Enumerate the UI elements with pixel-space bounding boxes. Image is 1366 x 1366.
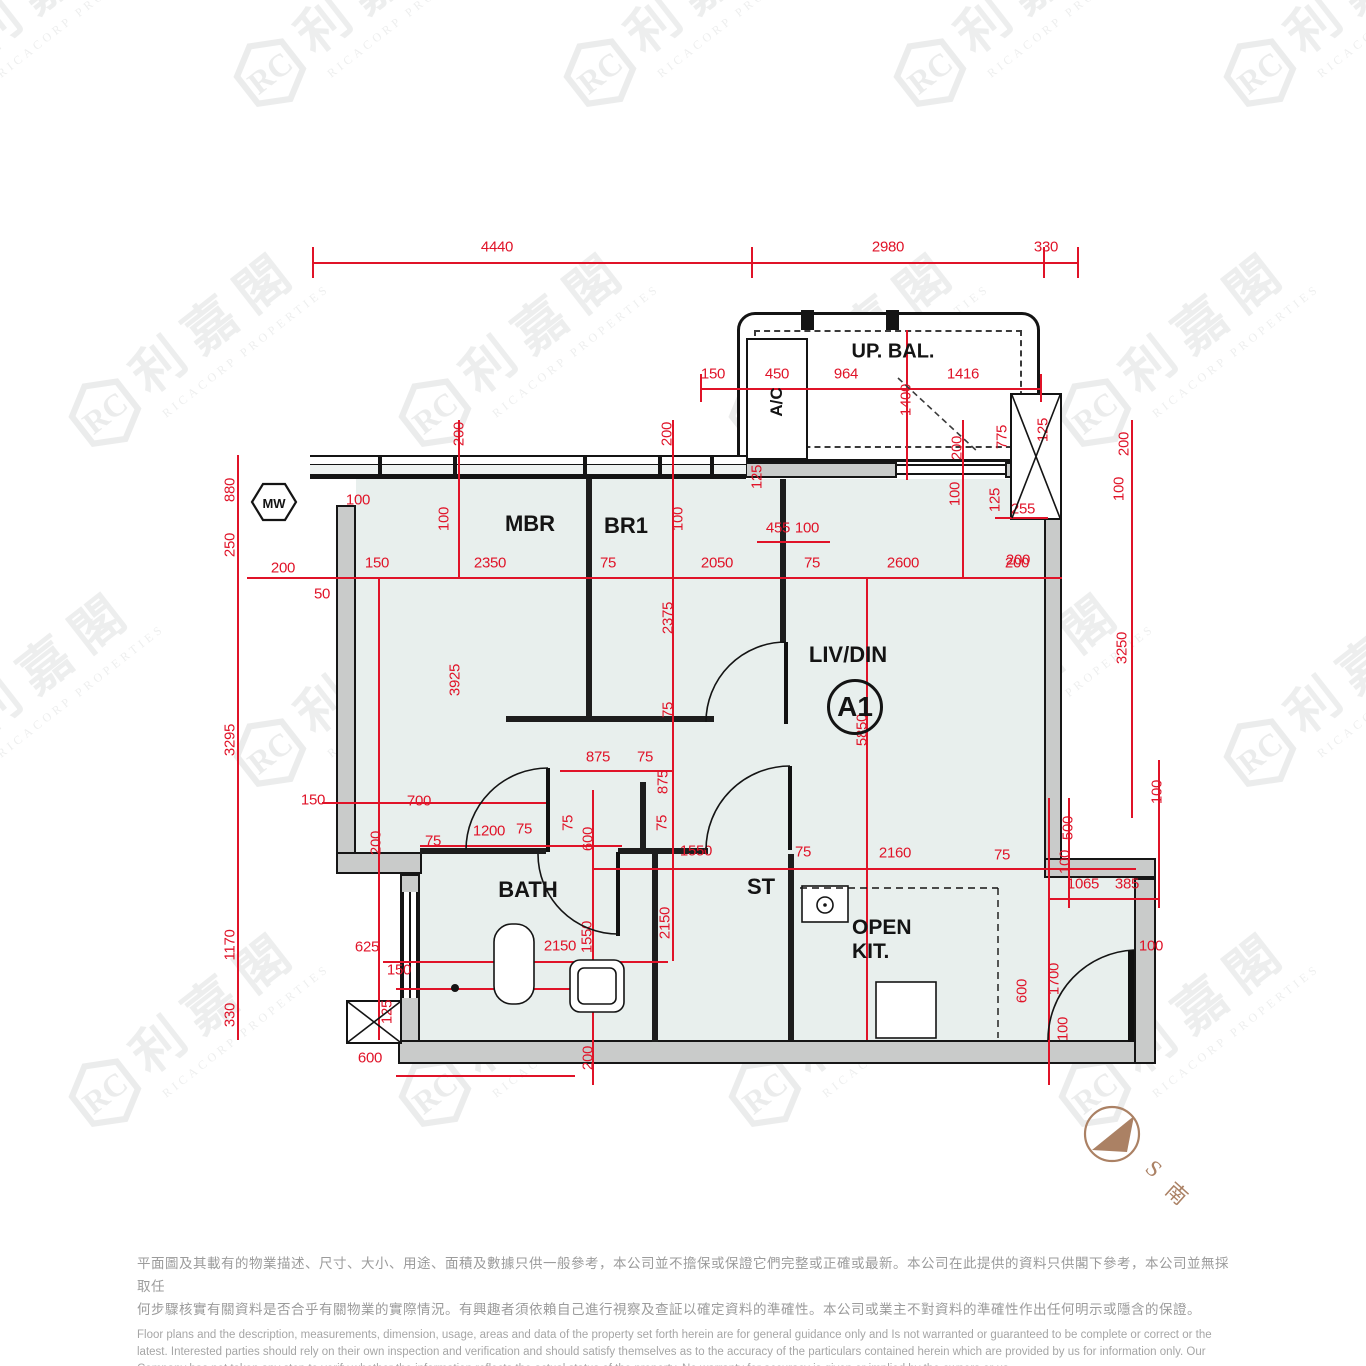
- svg-text:RC: RC: [406, 1064, 465, 1121]
- svg-text:RC: RC: [241, 44, 300, 101]
- window-band: [310, 455, 746, 479]
- wall-interior: [586, 479, 592, 722]
- dimension-label: 455: [766, 520, 790, 537]
- disclaimer-en-3: Company has not taken any step to verify…: [137, 1361, 1242, 1366]
- dimension-line: [383, 961, 668, 963]
- dimension-label: 75: [994, 847, 1010, 864]
- dimension-line: [322, 802, 546, 804]
- dimension-label: 75: [795, 844, 811, 861]
- dimension-label: 75: [804, 555, 820, 572]
- watermark-cn: 利嘉閣: [937, 0, 1148, 68]
- dimension-label: 2350: [474, 555, 506, 572]
- disclaimer-en: Floor plans and the description, measure…: [137, 1327, 1242, 1366]
- watermark-en: RICACORP PROPERTIES: [1314, 0, 1366, 81]
- dimension-line: [396, 988, 592, 990]
- dimension-label: 125: [749, 465, 766, 489]
- ricacorp-logo-icon: RC: [1208, 701, 1312, 805]
- watermark: RC利嘉閣RICACORP PROPERTIES: [0, 560, 168, 811]
- dimension-label: 200: [1005, 555, 1029, 572]
- room-label-livdin: LIV/DIN: [809, 642, 887, 668]
- watermark: RC利嘉閣RICACORP PROPERTIES: [542, 0, 828, 132]
- dimension-label: 330: [222, 1003, 239, 1027]
- watermark-en: RICACORP PROPERTIES: [0, 621, 168, 761]
- disclaimer: 平面圖及其載有的物業描述、尺寸、大小、用途、面積及數據只供一般參考，本公司並不擔…: [137, 1252, 1242, 1366]
- dimension-line: [1131, 420, 1133, 818]
- room-label-openkit: OPEN KIT.: [852, 916, 912, 964]
- door-leaf: [546, 768, 550, 852]
- dimension-label: 3250: [1114, 632, 1131, 664]
- dimension-label: 75: [637, 749, 653, 766]
- watermark-cn: 利嘉閣: [1267, 0, 1366, 68]
- dimension-line: [312, 262, 1078, 264]
- dimension-label: 964: [834, 366, 858, 383]
- dimension-label: 100: [1149, 780, 1166, 804]
- ricacorp-logo-icon: RC: [548, 21, 652, 125]
- wall-exterior: [1044, 478, 1062, 860]
- wall-exterior: [1134, 878, 1156, 1064]
- dimension-label: 150: [387, 962, 411, 979]
- wall-exterior: [398, 1040, 1136, 1064]
- watermark-cn: 利嘉閣: [607, 0, 818, 68]
- dimension-label: 625: [355, 939, 379, 956]
- dimension-label: 125: [1035, 418, 1052, 442]
- room-fill: [1044, 878, 1134, 1040]
- bath-window: [402, 892, 418, 998]
- watermark: RC利嘉閣RICACORP PROPERTIES: [1202, 560, 1366, 811]
- compass: S 南: [1085, 1107, 1192, 1210]
- dimension-label: 100: [795, 520, 819, 537]
- wall-interior: [652, 854, 658, 1042]
- unit-badge: A1: [827, 679, 883, 735]
- watermark: RC利嘉閣RICACORP PROPERTIES: [872, 0, 1158, 132]
- dimension-label: 75: [425, 833, 441, 850]
- window-mullion: [710, 456, 714, 478]
- dimension-label: 2050: [701, 555, 733, 572]
- svg-text:RC: RC: [76, 1064, 135, 1121]
- dimension-line: [672, 420, 674, 961]
- watermark-en: RICACORP PROPERTIES: [654, 0, 828, 81]
- watermark-en: RICACORP PROPERTIES: [1314, 621, 1366, 761]
- wall-interior: [640, 782, 646, 848]
- dimension-label: 150: [365, 555, 389, 572]
- dimension-label: 2150: [657, 907, 674, 939]
- dimension-label: 75: [560, 815, 577, 831]
- dimension-label: 1170: [222, 929, 239, 960]
- dimension-line: [1048, 898, 1158, 900]
- dimension-label: 775: [994, 425, 1011, 449]
- watermark-cn: 利嘉閣: [112, 900, 323, 1087]
- dimension-line: [1040, 374, 1042, 402]
- disclaimer-zh-2: 何步驟核實有關資料是否合乎有關物業的實際情況。有興趣者須依賴自己進行視察及查証以…: [137, 1298, 1242, 1321]
- dimension-label: 75: [654, 815, 671, 831]
- dimension-label: 2980: [872, 239, 904, 256]
- dimension-label: 1700: [1046, 963, 1063, 995]
- watermark-en: RICACORP PROPERTIES: [1149, 961, 1323, 1101]
- watermark: RC利嘉閣RICACORP PROPERTIES: [47, 900, 333, 1151]
- balcony-post: [886, 310, 899, 330]
- wall-interior: [506, 716, 714, 722]
- balcony-sliding-door: [895, 464, 1007, 475]
- ricacorp-logo-icon: RC: [383, 361, 487, 465]
- disclaimer-zh-1: 平面圖及其載有的物業描述、尺寸、大小、用途、面積及數據只供一般參考，本公司並不擔…: [137, 1252, 1242, 1298]
- wall-interior: [788, 854, 794, 1040]
- dimension-label: 875: [655, 770, 672, 794]
- dimension-label: 100: [670, 507, 687, 531]
- svg-text:RC: RC: [736, 1064, 795, 1121]
- floorplan-canvas: RC利嘉閣RICACORP PROPERTIESRC利嘉閣RICACORP PR…: [0, 0, 1366, 1366]
- dimension-label: 2160: [879, 845, 911, 862]
- watermark: RC利嘉閣RICACORP PROPERTIES: [47, 220, 333, 471]
- dimension-label: 200: [368, 831, 385, 855]
- dimension-label: 700: [407, 793, 431, 810]
- watermark-en: RICACORP PROPERTIES: [159, 961, 333, 1101]
- watermark-cn: 利嘉閣: [1102, 220, 1313, 407]
- watermark-cn: 利嘉閣: [112, 220, 323, 407]
- dimension-label: 4440: [481, 239, 513, 256]
- dimension-label: 200: [1116, 432, 1133, 456]
- room-label-mbr: MBR: [505, 511, 555, 537]
- watermark-cn: 利嘉閣: [0, 560, 158, 747]
- dimension-label: 1065: [1067, 876, 1099, 893]
- compass-arrow: [1092, 1116, 1134, 1152]
- dimension-label: 75: [600, 555, 616, 572]
- room-label-upbal: UP. BAL.: [852, 341, 935, 364]
- door-leaf: [1128, 950, 1134, 1042]
- ricacorp-logo-icon: RC: [218, 21, 322, 125]
- balcony-post: [801, 310, 814, 330]
- dimension-label: 100: [947, 482, 964, 506]
- door-leaf: [788, 766, 792, 850]
- compass-circle: [1085, 1107, 1139, 1161]
- svg-text:RC: RC: [1231, 44, 1290, 101]
- room-label-bath: BATH: [498, 877, 557, 903]
- dimension-label: 330: [1034, 239, 1058, 256]
- dimension-line: [1048, 798, 1050, 1085]
- room-label-br1: BR1: [604, 513, 648, 539]
- watermark-en: RICACORP PROPERTIES: [1149, 281, 1323, 421]
- compass-south: 南: [1161, 1178, 1193, 1210]
- door-leaf: [784, 642, 788, 724]
- svg-text:RC: RC: [1066, 1064, 1125, 1121]
- watermark-cn: 利嘉閣: [277, 0, 488, 68]
- dimension-label: 3295: [222, 724, 239, 756]
- dimension-label: 200: [580, 1046, 597, 1070]
- watermark-cn: 利嘉閣: [0, 0, 158, 68]
- window-mullion: [658, 456, 662, 478]
- dimension-line: [247, 577, 1062, 579]
- mw-label: MW: [262, 496, 286, 511]
- dimension-label: 600: [580, 827, 597, 851]
- openkit-line1: OPEN: [852, 916, 912, 940]
- dimension-line: [757, 541, 830, 543]
- dimension-label: 255: [1011, 501, 1035, 518]
- ricacorp-logo-icon: RC: [878, 21, 982, 125]
- ricacorp-logo-icon: RC: [53, 361, 157, 465]
- dimension-label: 3925: [447, 664, 464, 696]
- dimension-label: 500: [1060, 816, 1077, 840]
- dimension-line: [1077, 247, 1079, 278]
- dimension-label: 600: [1014, 979, 1031, 1003]
- watermark-en: RICACORP PROPERTIES: [159, 281, 333, 421]
- watermark-cn: 利嘉閣: [442, 220, 653, 407]
- door-leaf: [616, 852, 620, 936]
- dimension-label: 200: [271, 560, 295, 577]
- ricacorp-logo-icon: RC: [53, 1041, 157, 1145]
- svg-text:RC: RC: [901, 44, 960, 101]
- openkit-line2: KIT.: [852, 940, 912, 964]
- dimension-label: 100: [346, 492, 370, 509]
- watermark: RC利嘉閣RICACORP PROPERTIES: [0, 0, 168, 132]
- dimension-label: 600: [358, 1050, 382, 1067]
- dimension-label: 1416: [947, 366, 979, 383]
- watermark-en: RICACORP PROPERTIES: [0, 0, 168, 81]
- dimension-line: [378, 577, 380, 1040]
- dimension-label: 100: [1057, 850, 1074, 874]
- watermark: RC利嘉閣RICACORP PROPERTIES: [377, 220, 663, 471]
- dimension-label: 200: [451, 422, 468, 446]
- dimension-label: 100: [1055, 1017, 1072, 1041]
- dimension-label: 1200: [473, 823, 505, 840]
- dimension-label: 385: [1115, 876, 1139, 893]
- dimension-label: 75: [660, 702, 677, 718]
- svg-text:RC: RC: [76, 384, 135, 441]
- wall-interior: [780, 479, 786, 643]
- dimension-label: 1400: [898, 384, 915, 416]
- dimension-label: 250: [222, 533, 239, 557]
- dimension-label: 1550: [579, 921, 596, 953]
- dimension-label: 75: [516, 821, 532, 838]
- dimension-label: 200: [659, 422, 676, 446]
- wall-exterior: [745, 462, 897, 478]
- dimension-label: 100: [1139, 938, 1163, 955]
- room-label-ac: A/C: [767, 387, 787, 416]
- watermark-cn: 利嘉閣: [1267, 560, 1366, 747]
- dimension-line: [592, 868, 1136, 870]
- dimension-line: [396, 1075, 575, 1077]
- dimension-line: [312, 247, 314, 278]
- dimension-label: 2150: [544, 938, 576, 955]
- watermark: RC利嘉閣RICACORP PROPERTIES: [212, 0, 498, 132]
- svg-text:RC: RC: [241, 724, 300, 781]
- dimension-label: 2375: [660, 602, 677, 634]
- dimension-label: 150: [701, 366, 725, 383]
- svg-text:RC: RC: [1231, 724, 1290, 781]
- dimension-label: 1550: [680, 843, 712, 860]
- watermark-en: RICACORP PROPERTIES: [324, 0, 498, 81]
- dimension-label: 875: [586, 749, 610, 766]
- dimension-label: 2600: [887, 555, 919, 572]
- dimension-label: 450: [765, 366, 789, 383]
- watermark-en: RICACORP PROPERTIES: [984, 0, 1158, 81]
- dimension-line: [700, 388, 1040, 390]
- dimension-label: 125: [379, 1000, 396, 1024]
- dimension-label: 125: [987, 488, 1004, 512]
- unit-label: A1: [837, 691, 873, 723]
- disclaimer-en-2: latest. Interested parties should rely o…: [137, 1344, 1242, 1361]
- window-mullion: [378, 456, 382, 478]
- compass-s: S: [1141, 1155, 1167, 1182]
- room-label-st: ST: [747, 874, 775, 900]
- window-mullion: [583, 456, 587, 478]
- dimension-line: [751, 247, 753, 278]
- dimension-label: 50: [314, 586, 330, 603]
- dimension-label: 880: [222, 478, 239, 502]
- window-mullion: [453, 456, 457, 478]
- svg-text:RC: RC: [571, 44, 630, 101]
- dimension-label: 150: [301, 792, 325, 809]
- dimension-label: 100: [1111, 477, 1128, 501]
- watermark-en: RICACORP PROPERTIES: [489, 281, 663, 421]
- dimension-label: 200: [949, 436, 966, 460]
- mw-marker: MW: [252, 484, 296, 520]
- dimension-label: 100: [436, 507, 453, 531]
- wall-interior: [618, 848, 654, 854]
- ricacorp-logo-icon: RC: [1208, 21, 1312, 125]
- disclaimer-en-1: Floor plans and the description, measure…: [137, 1327, 1242, 1344]
- watermark: RC利嘉閣RICACORP PROPERTIES: [1202, 0, 1366, 132]
- watermark: RC利嘉閣RICACORP PROPERTIES: [1037, 220, 1323, 471]
